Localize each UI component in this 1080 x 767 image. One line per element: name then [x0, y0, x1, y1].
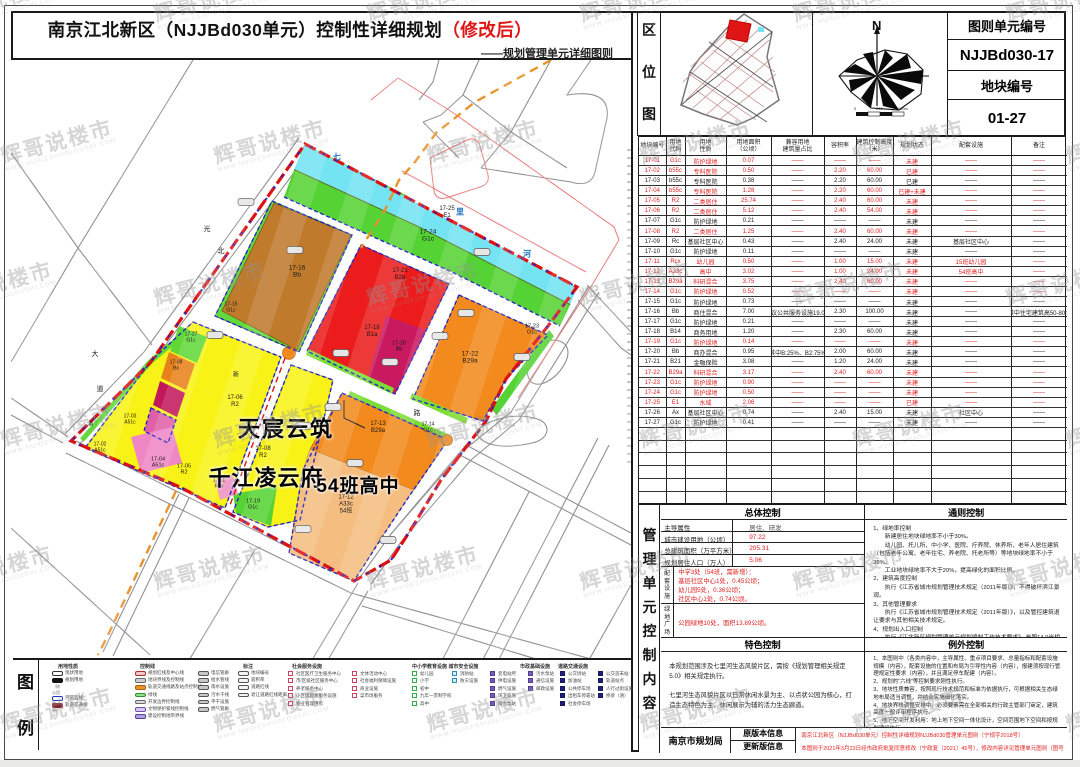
- svg-text:500m: 500m: [898, 106, 909, 111]
- svg-text:0: 0: [854, 106, 857, 111]
- svg-text:N: N: [872, 18, 881, 33]
- svg-text:250: 250: [876, 106, 883, 111]
